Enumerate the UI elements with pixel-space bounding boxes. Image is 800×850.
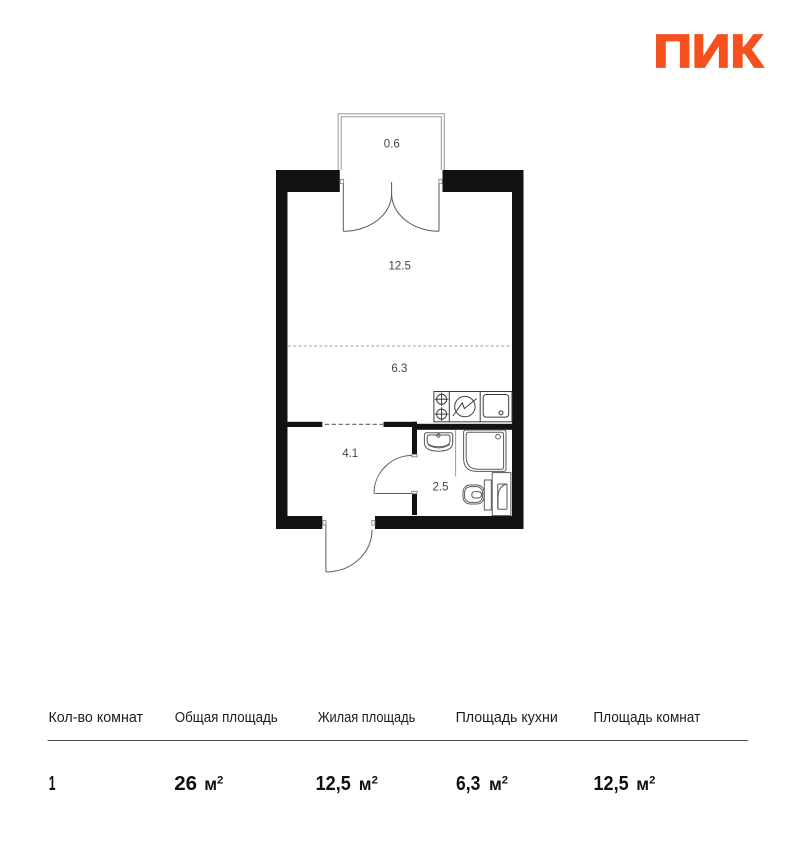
svg-text:26: 26 bbox=[174, 772, 197, 795]
svg-text:6.3: 6.3 bbox=[391, 363, 407, 375]
svg-text:Площадь кухни: Площадь кухни bbox=[456, 709, 558, 726]
svg-text:2.5: 2.5 bbox=[433, 482, 449, 494]
svg-text:м2: м2 bbox=[204, 774, 223, 794]
svg-text:12,5: 12,5 bbox=[594, 772, 629, 795]
svg-text:0.6: 0.6 bbox=[384, 138, 400, 150]
svg-text:12.5: 12.5 bbox=[389, 261, 411, 273]
svg-text:Кол-во комнат: Кол-во комнат bbox=[49, 709, 144, 726]
svg-text:12,5: 12,5 bbox=[316, 772, 351, 795]
svg-text:м2: м2 bbox=[359, 774, 378, 794]
svg-text:Жилая площадь: Жилая площадь bbox=[318, 709, 416, 726]
svg-text:1: 1 bbox=[49, 772, 56, 795]
svg-text:м2: м2 bbox=[636, 774, 655, 794]
svg-text:6,3: 6,3 bbox=[456, 772, 480, 795]
svg-text:м2: м2 bbox=[489, 774, 508, 794]
svg-text:Площадь комнат: Площадь комнат bbox=[593, 709, 700, 726]
svg-text:4.1: 4.1 bbox=[342, 448, 358, 460]
svg-text:Общая площадь: Общая площадь bbox=[175, 709, 278, 726]
svg-text:ПИК: ПИК bbox=[654, 25, 764, 77]
